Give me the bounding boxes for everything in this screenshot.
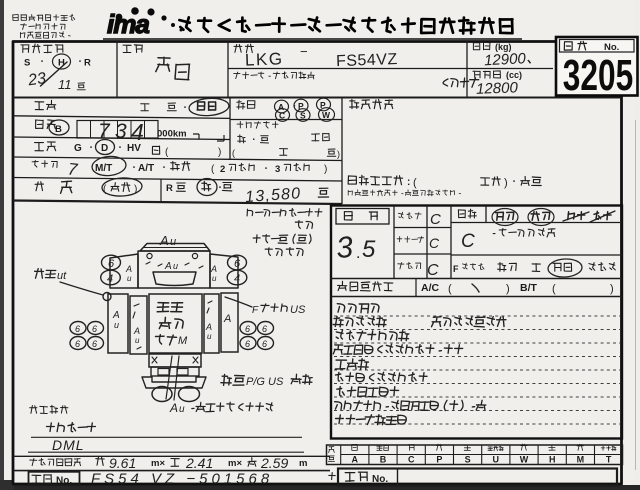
- svg-text:P/G: P/G: [246, 376, 265, 388]
- svg-text:C: C: [461, 231, 475, 252]
- svg-text:u: u: [212, 274, 217, 283]
- svg-text:u: u: [173, 261, 178, 271]
- svg-text:000km: 000km: [157, 129, 187, 140]
- svg-text:9.61: 9.61: [109, 455, 136, 471]
- svg-text:No.: No.: [372, 474, 388, 485]
- svg-text:(: (: [232, 148, 235, 158]
- svg-text:3: 3: [275, 164, 280, 175]
- svg-text:C: C: [408, 455, 415, 465]
- svg-text:・: ・: [181, 103, 189, 112]
- svg-text:C: C: [430, 211, 441, 228]
- svg-text:・: ・: [76, 57, 84, 66]
- svg-text:F: F: [453, 264, 459, 274]
- svg-text:A: A: [169, 401, 178, 415]
- svg-text:5: 5: [362, 236, 376, 263]
- svg-text:HV: HV: [127, 143, 141, 154]
- svg-text:6: 6: [234, 258, 241, 270]
- svg-text:6: 6: [245, 339, 250, 349]
- svg-text:US: US: [290, 304, 306, 316]
- svg-text:R: R: [166, 183, 173, 194]
- svg-text:(: (: [413, 177, 417, 189]
- svg-text:D: D: [101, 143, 108, 154]
- svg-text:u: u: [127, 274, 132, 283]
- svg-text:FS54 VZ −501568: FS54 VZ −501568: [91, 471, 273, 488]
- svg-text:(cc): (cc): [506, 70, 522, 80]
- svg-text:H: H: [549, 455, 556, 465]
- svg-text:(: (: [552, 283, 556, 295]
- svg-text::: :: [407, 177, 410, 188]
- svg-text:3: 3: [335, 231, 355, 265]
- svg-text:R: R: [84, 58, 91, 69]
- svg-text:・: ・: [262, 164, 270, 173]
- svg-text:A: A: [125, 264, 132, 274]
- svg-text:FS54VZ: FS54VZ: [336, 51, 398, 70]
- svg-text:3205: 3205: [563, 51, 633, 100]
- svg-text:2: 2: [220, 164, 225, 175]
- svg-text:T: T: [606, 455, 612, 465]
- svg-text:−: −: [300, 44, 308, 59]
- svg-text:・: ・: [116, 143, 124, 152]
- svg-text:m×: m×: [151, 458, 165, 469]
- svg-text:ut: ut: [57, 270, 67, 282]
- svg-text:6: 6: [75, 324, 80, 334]
- svg-text:F: F: [252, 305, 259, 316]
- svg-text:LKG: LKG: [245, 49, 284, 69]
- svg-text:4: 4: [131, 119, 144, 145]
- svg-text:6: 6: [262, 324, 267, 334]
- svg-text:u: u: [207, 332, 212, 341]
- svg-text:m×: m×: [228, 458, 242, 469]
- svg-text:(: (: [448, 283, 452, 295]
- svg-text:DML: DML: [52, 437, 85, 453]
- svg-text:): ): [324, 164, 327, 175]
- svg-text:・: ・: [510, 177, 518, 186]
- svg-text:A: A: [133, 326, 140, 336]
- svg-text:A: A: [159, 233, 169, 248]
- svg-text:A/C: A/C: [421, 282, 440, 294]
- svg-text:12900、: 12900、: [484, 49, 542, 69]
- svg-text:6: 6: [108, 258, 115, 270]
- svg-text:u: u: [114, 320, 119, 330]
- svg-text:): ): [610, 283, 614, 295]
- svg-text:M/T: M/T: [95, 163, 112, 174]
- svg-text:No.: No.: [56, 476, 72, 487]
- svg-text:P: P: [436, 455, 442, 465]
- svg-text:6: 6: [262, 339, 267, 349]
- svg-text:A: A: [352, 455, 359, 465]
- svg-text:12800: 12800: [476, 79, 519, 97]
- svg-text:2.41: 2.41: [185, 455, 213, 471]
- svg-text:A: A: [205, 322, 212, 332]
- svg-text:C: C: [427, 262, 439, 279]
- svg-text:4: 4: [234, 273, 240, 285]
- svg-text:A: A: [223, 313, 231, 325]
- svg-text:M: M: [178, 335, 188, 347]
- svg-text:S: S: [24, 58, 30, 69]
- svg-text:): ): [506, 283, 510, 295]
- svg-text:S: S: [465, 455, 471, 465]
- svg-text:C: C: [279, 111, 285, 121]
- svg-text:G: G: [74, 143, 82, 154]
- svg-text:・: ・: [38, 57, 46, 66]
- svg-text:・: ・: [130, 163, 138, 172]
- svg-text:u: u: [179, 404, 185, 415]
- svg-text:): ): [504, 177, 508, 189]
- svg-text:・: ・: [160, 163, 168, 172]
- svg-text:): ): [218, 147, 221, 158]
- svg-text:6: 6: [245, 324, 250, 334]
- svg-text:6: 6: [75, 339, 80, 349]
- svg-text:2.59: 2.59: [260, 455, 288, 471]
- svg-text:W: W: [520, 455, 529, 465]
- svg-text:・: ・: [87, 143, 95, 152]
- svg-text:m: m: [299, 458, 307, 469]
- svg-text:6: 6: [92, 339, 97, 349]
- svg-text:S: S: [300, 111, 306, 121]
- svg-text:B: B: [380, 455, 387, 465]
- svg-text:u: u: [170, 236, 176, 248]
- svg-text:A: A: [210, 264, 217, 274]
- svg-text:6: 6: [92, 324, 97, 334]
- svg-text:U: U: [493, 455, 500, 465]
- svg-text:u: u: [135, 336, 140, 345]
- svg-text:): ): [337, 149, 340, 159]
- svg-text:23: 23: [26, 70, 47, 89]
- svg-text:A: A: [164, 261, 172, 272]
- svg-text:US: US: [268, 376, 284, 388]
- svg-text:B: B: [55, 124, 62, 135]
- svg-text:C: C: [429, 235, 440, 251]
- svg-text:B/T: B/T: [520, 282, 538, 294]
- svg-text:ima: ima: [107, 9, 149, 39]
- svg-text:.: .: [356, 245, 360, 262]
- svg-text:3: 3: [115, 120, 127, 143]
- svg-text:A/T: A/T: [138, 163, 154, 174]
- svg-text:4: 4: [107, 273, 113, 285]
- svg-text:11: 11: [58, 77, 72, 92]
- svg-text:・: ・: [250, 135, 258, 144]
- svg-text:W: W: [322, 110, 331, 120]
- svg-text:M: M: [577, 455, 585, 465]
